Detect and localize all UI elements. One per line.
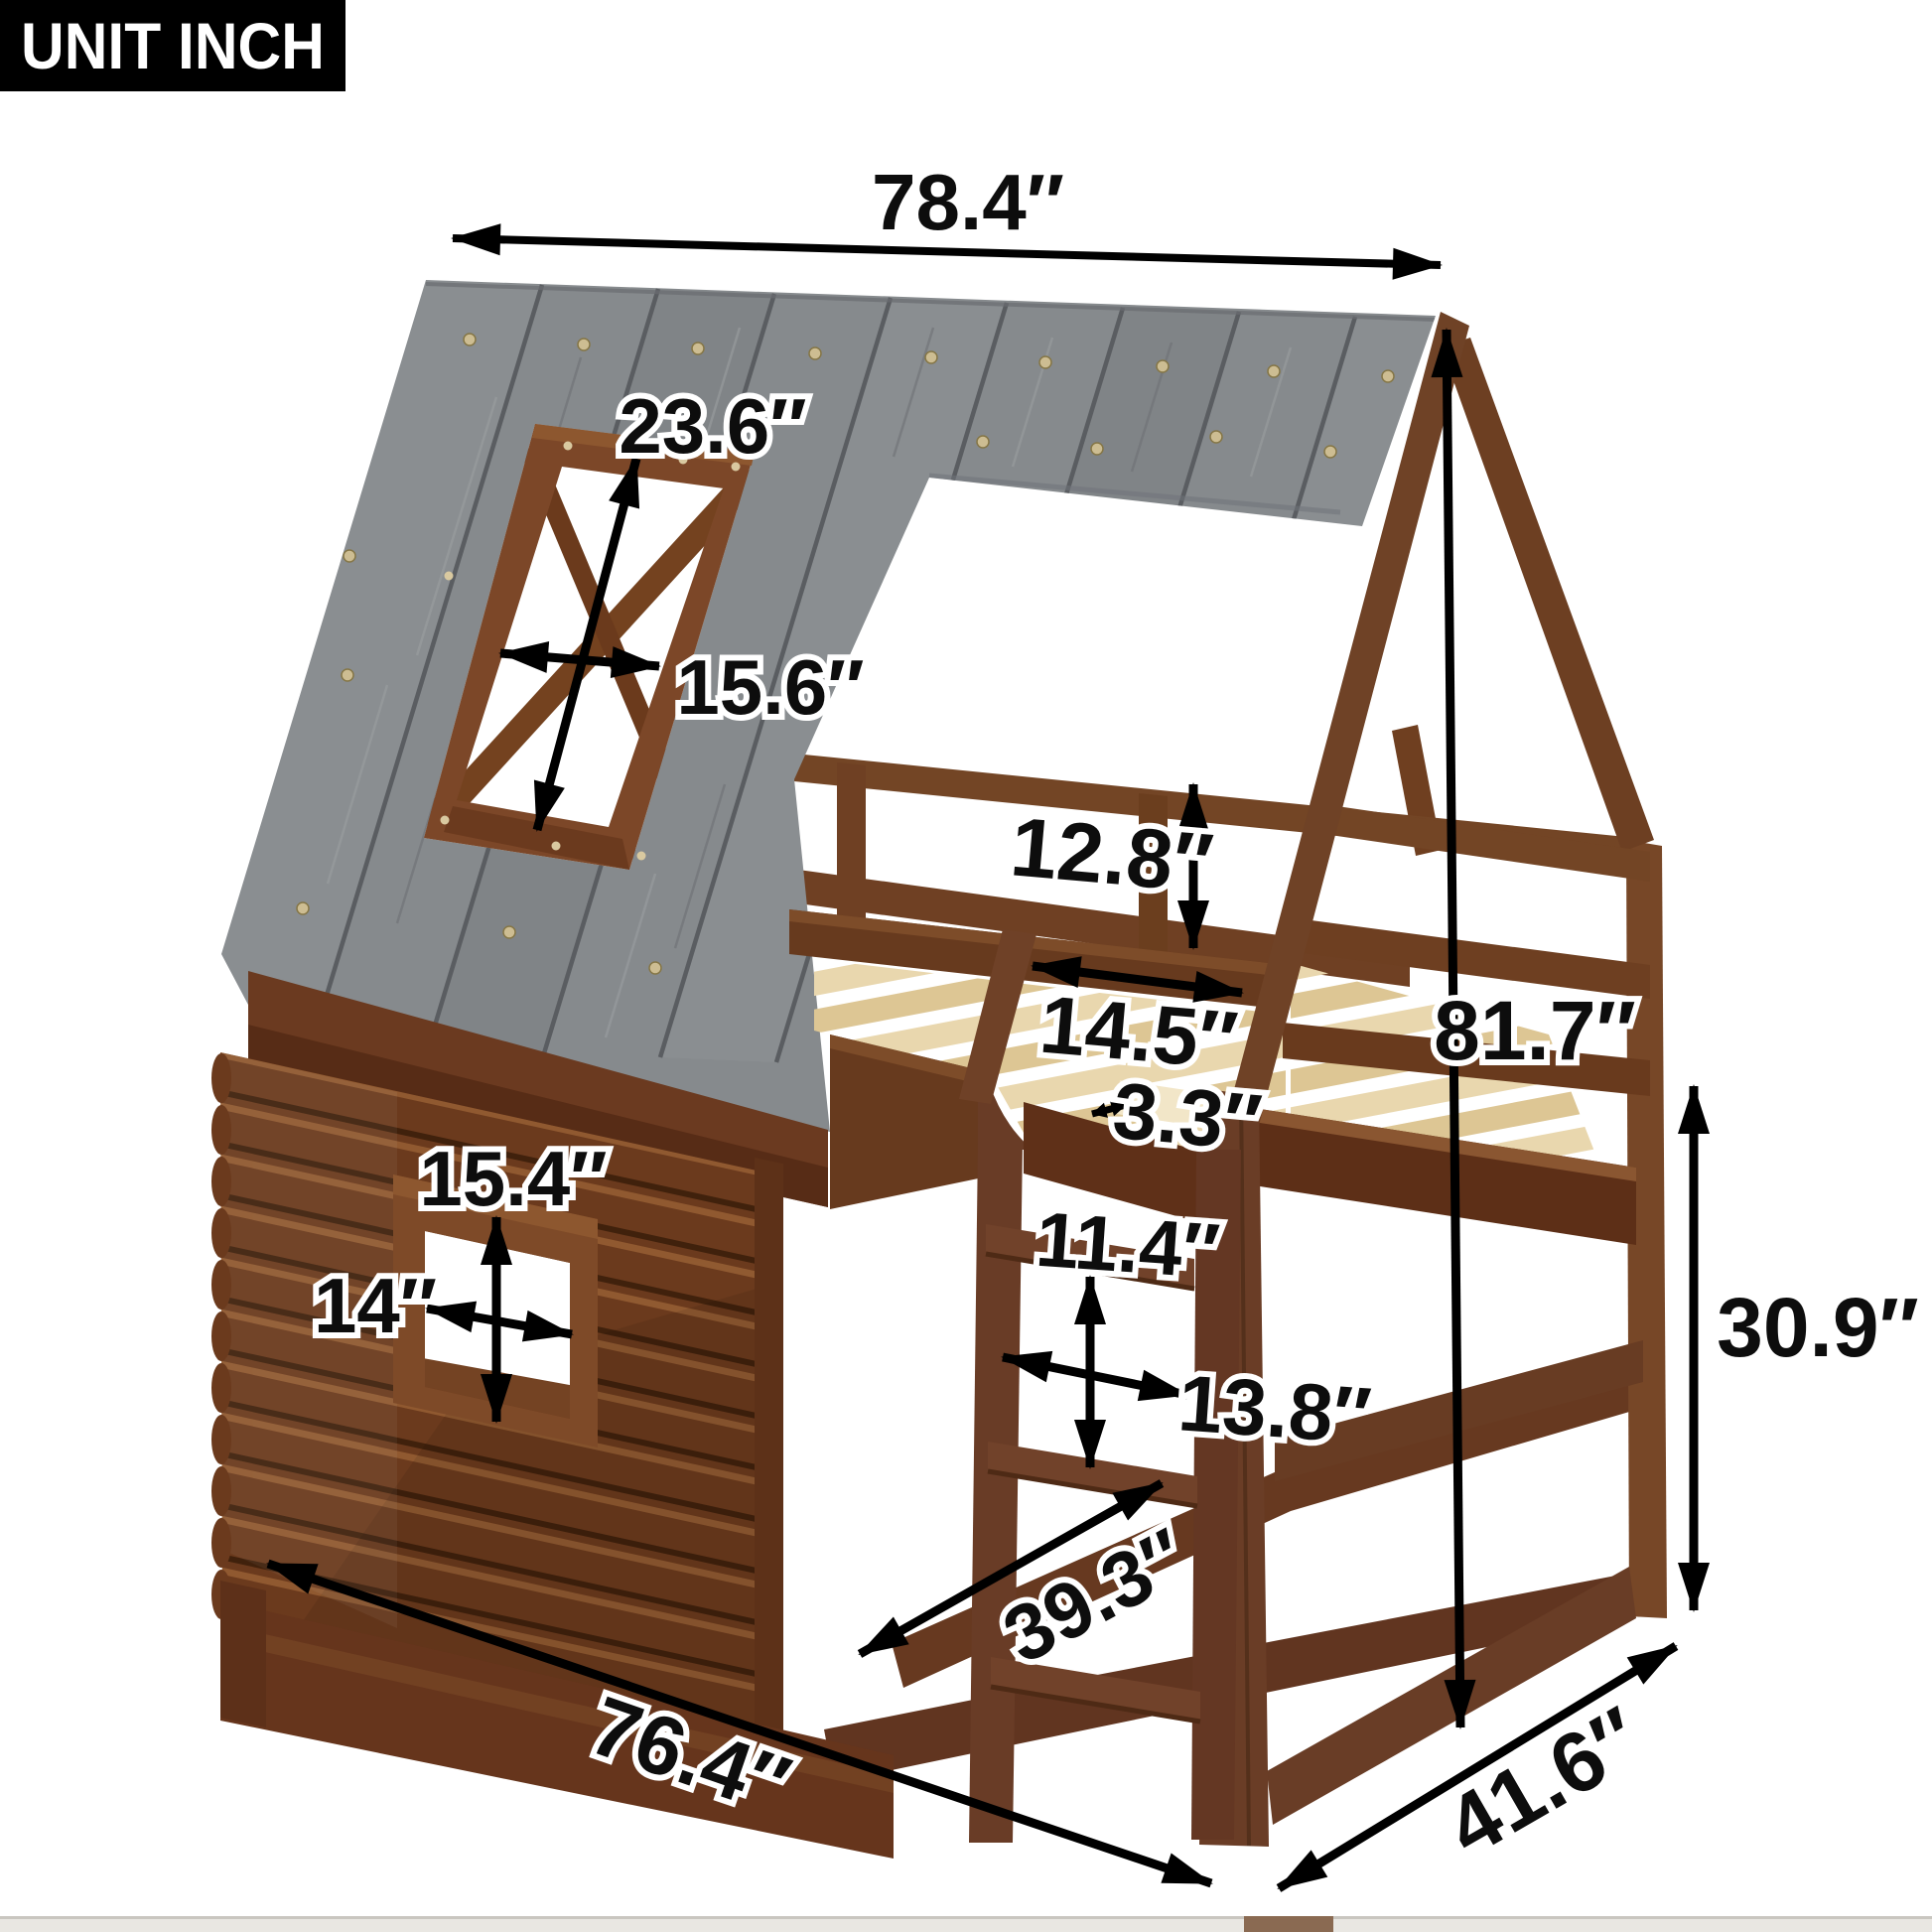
svg-text:11.4″: 11.4″ — [1034, 1195, 1223, 1296]
svg-text:30.9″: 30.9″ — [1717, 1281, 1919, 1374]
svg-text:13.8″: 13.8″ — [1175, 1358, 1374, 1459]
svg-text:14″: 14″ — [314, 1262, 437, 1349]
svg-text:78.4″: 78.4″ — [872, 158, 1064, 246]
svg-text:15.4″: 15.4″ — [419, 1135, 607, 1222]
svg-text:81.7″: 81.7″ — [1434, 984, 1636, 1077]
svg-text:15.6″: 15.6″ — [676, 643, 864, 731]
svg-text:3.3″: 3.3″ — [1110, 1066, 1266, 1168]
svg-text:12.8″: 12.8″ — [1007, 799, 1216, 909]
svg-text:UNIT INCH: UNIT INCH — [21, 9, 325, 82]
svg-text:23.6″: 23.6″ — [619, 382, 806, 470]
